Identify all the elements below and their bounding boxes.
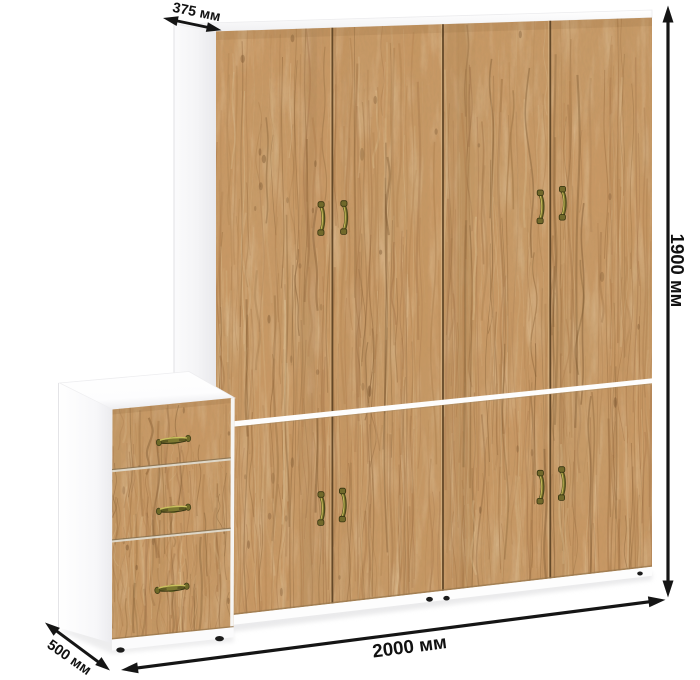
svg-text:1900 мм: 1900 мм [667,234,688,308]
